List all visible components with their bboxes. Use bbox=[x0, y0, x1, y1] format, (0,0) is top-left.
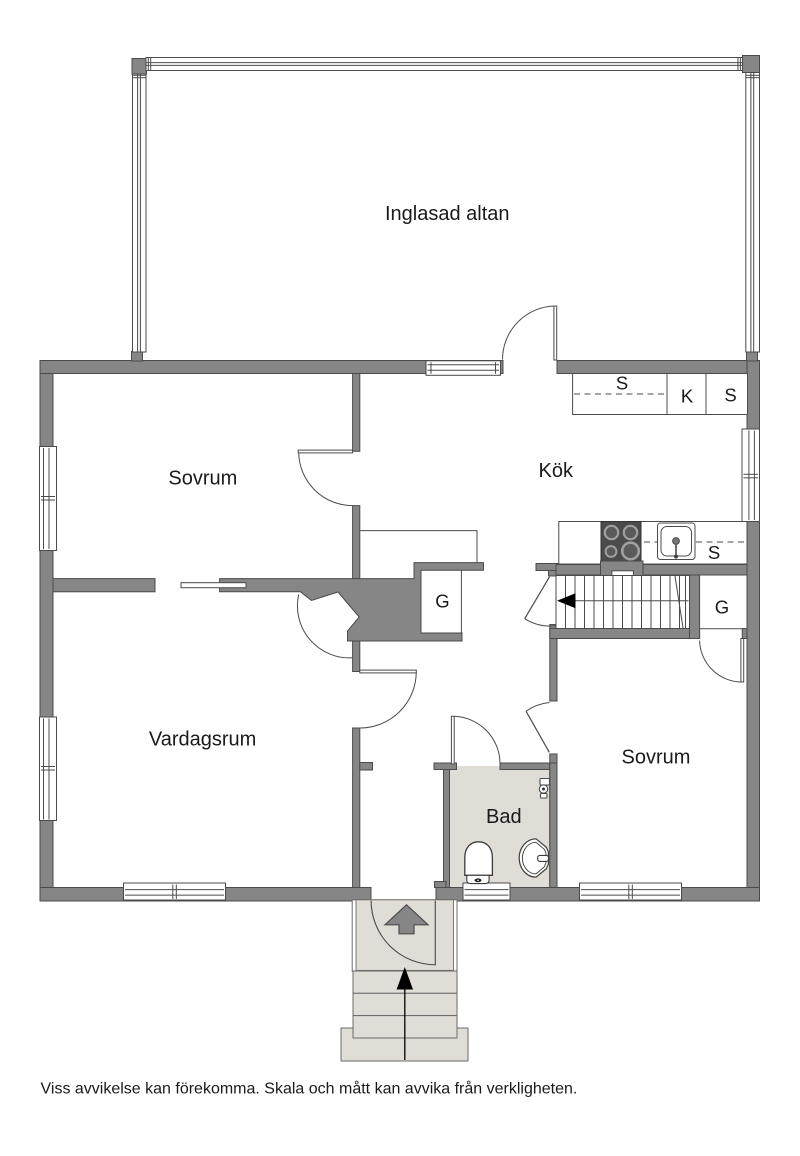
svg-text:S: S bbox=[708, 542, 720, 563]
svg-text:G: G bbox=[715, 597, 729, 618]
svg-text:Kök: Kök bbox=[539, 460, 574, 482]
svg-text:G: G bbox=[435, 591, 449, 612]
svg-text:Bad: Bad bbox=[486, 806, 522, 828]
svg-text:K: K bbox=[681, 386, 694, 407]
svg-text:S: S bbox=[724, 385, 736, 406]
svg-text:S: S bbox=[616, 373, 628, 394]
svg-text:Viss avvikelse kan förekomma.: Viss avvikelse kan förekomma. Skala och … bbox=[41, 1080, 578, 1098]
svg-text:Sovrum: Sovrum bbox=[168, 468, 237, 490]
svg-text:Sovrum: Sovrum bbox=[622, 747, 691, 769]
svg-text:Inglasad altan: Inglasad altan bbox=[385, 203, 510, 225]
svg-text:Vardagsrum: Vardagsrum bbox=[149, 729, 256, 751]
